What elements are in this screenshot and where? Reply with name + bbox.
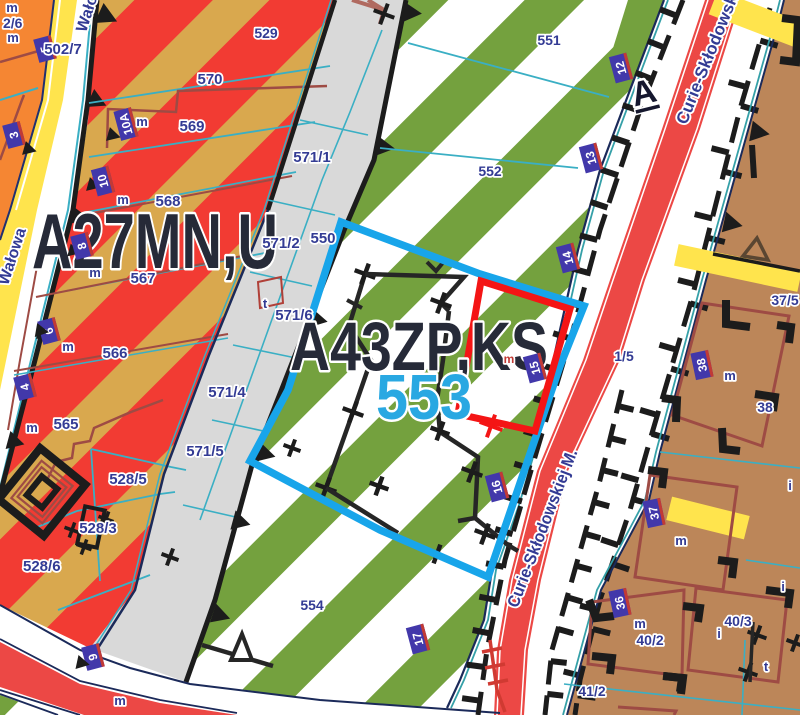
svg-text:528/3: 528/3 <box>79 520 117 537</box>
svg-text:553: 553 <box>376 361 472 433</box>
svg-text:m: m <box>724 368 736 383</box>
svg-text:567: 567 <box>130 270 155 287</box>
svg-text:m: m <box>114 693 126 708</box>
svg-text:m: m <box>136 114 148 129</box>
svg-text:40/2: 40/2 <box>636 632 663 648</box>
svg-text:569: 569 <box>179 118 204 135</box>
svg-text:t: t <box>764 659 769 674</box>
svg-text:570: 570 <box>197 71 222 88</box>
svg-text:571/4: 571/4 <box>208 384 246 401</box>
svg-text:554: 554 <box>300 597 324 613</box>
svg-text:551: 551 <box>537 32 561 48</box>
svg-text:m: m <box>675 533 687 548</box>
svg-text:528/6: 528/6 <box>23 558 61 575</box>
svg-text:i: i <box>717 626 721 641</box>
svg-text:568: 568 <box>155 193 180 210</box>
svg-text:40/3: 40/3 <box>724 613 751 629</box>
svg-text:571/2: 571/2 <box>262 235 300 252</box>
svg-text:552: 552 <box>478 163 502 179</box>
svg-text:550: 550 <box>310 230 335 247</box>
svg-text:m: m <box>62 339 74 354</box>
svg-text:528/5: 528/5 <box>109 471 147 488</box>
svg-text:37/5: 37/5 <box>771 292 798 308</box>
svg-text:571/6: 571/6 <box>275 307 313 324</box>
svg-text:m: m <box>6 0 18 15</box>
svg-text:m: m <box>26 420 38 435</box>
svg-text:571/1: 571/1 <box>293 149 331 166</box>
svg-text:i: i <box>788 478 792 493</box>
svg-text:m: m <box>89 265 101 280</box>
svg-text:529: 529 <box>254 25 278 41</box>
svg-text:t: t <box>263 296 268 311</box>
svg-text:571/5: 571/5 <box>186 443 224 460</box>
svg-text:566: 566 <box>102 345 127 362</box>
svg-text:38: 38 <box>757 399 773 415</box>
svg-text:1/5: 1/5 <box>614 348 634 364</box>
svg-text:m: m <box>7 30 19 45</box>
svg-text:m: m <box>117 192 129 207</box>
svg-text:41/2: 41/2 <box>578 683 605 699</box>
svg-text:502/7: 502/7 <box>44 41 82 58</box>
svg-text:2/6: 2/6 <box>3 15 23 31</box>
svg-text:m: m <box>634 616 646 631</box>
svg-text:i: i <box>781 579 785 594</box>
svg-text:565: 565 <box>53 416 78 433</box>
svg-text:m: m <box>504 352 515 366</box>
